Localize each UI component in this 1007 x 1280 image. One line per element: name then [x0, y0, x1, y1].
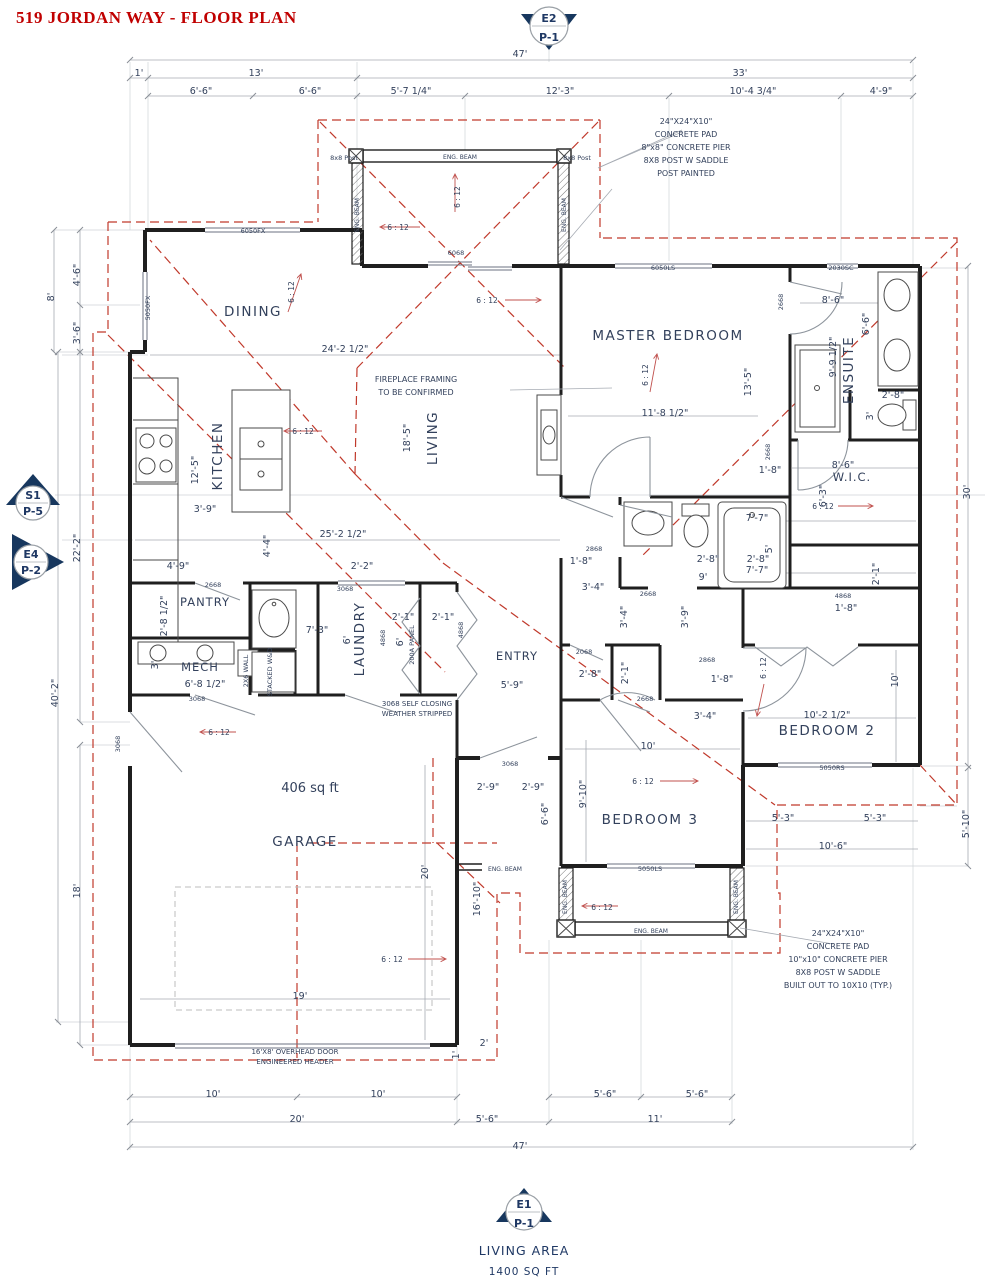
- door-size: 4868: [835, 592, 852, 600]
- dim-label: 6'-8 1/2": [185, 679, 226, 690]
- dim-label: 6': [342, 636, 353, 645]
- dim-label: 3': [865, 412, 876, 421]
- dim-label: 30': [962, 485, 973, 500]
- slope-label: 6 : 12: [453, 186, 462, 208]
- note-top-right: 8X8 POST W SADDLE: [644, 156, 729, 165]
- room-label-bedroom-3: BEDROOM 3: [602, 812, 699, 828]
- note-bottom-right: CONCRETE PAD: [807, 942, 870, 951]
- dim-label: 5'-7 1/4": [391, 86, 432, 97]
- dim-label: 2'-2": [351, 561, 374, 572]
- beam-label: ENG. BEAM: [733, 880, 740, 914]
- dim-label: 3'-9": [194, 504, 217, 515]
- room-label-kitchen: KITCHEN: [210, 422, 226, 491]
- marker-label: S1: [25, 489, 41, 502]
- room-label-dining: DINING: [224, 304, 282, 320]
- slope-label: 6 : 12: [208, 728, 230, 737]
- toilet-icon: [878, 404, 906, 426]
- dim-label: 5': [764, 545, 775, 554]
- window-size: 5050RS: [819, 764, 844, 772]
- section-marker-e2: E2 P-1: [521, 7, 577, 50]
- room-label-master-bedroom: MASTER BEDROOM: [592, 328, 743, 344]
- note-bottom-right: 24"X24"X10": [812, 929, 865, 938]
- slope-label: 6 : 12: [476, 296, 498, 305]
- dim-label: 6'-6": [861, 313, 872, 336]
- dim-label: 13'-5": [743, 368, 754, 397]
- note-top-right: 24"X24"X10": [660, 117, 713, 126]
- dim-label: 2'-9": [522, 782, 545, 793]
- dim-label: 1'-8": [570, 556, 593, 567]
- floor-plan-drawing: E2 P-1 S1 P-5 E4 P-2 E1 P-1 LIVING AREA …: [0, 0, 1007, 1280]
- dim-label: 10'-2 1/2": [804, 710, 851, 721]
- note-bottom-right: BUILT OUT TO 10X10 (TYP.): [784, 981, 892, 990]
- door-size: 2868: [586, 545, 603, 553]
- post-note: 8x8 Post: [330, 154, 358, 162]
- note-bottom-right: 8X8 POST W SADDLE: [796, 968, 881, 977]
- dim-label: 18'-5": [402, 424, 413, 453]
- note-top-right: 8"x8" CONCRETE PIER: [641, 143, 731, 152]
- dim-label: 2'-1": [392, 612, 415, 623]
- room-label-bedroom-2: BEDROOM 2: [779, 723, 876, 739]
- room-label-ensuite: ENSUITE: [841, 336, 857, 404]
- door-size: 3068: [189, 695, 206, 703]
- dim-label: 19': [293, 991, 308, 1002]
- door-size: 2668: [640, 590, 657, 598]
- slope-label: 6 : 12: [287, 281, 296, 303]
- dim-label: 9': [699, 572, 708, 583]
- wall-note: 2X6 WALL: [242, 654, 250, 687]
- dim-label: 40'-2": [50, 679, 61, 708]
- dim-label: 3'-4": [619, 606, 630, 629]
- dim-overall-top: 47': [513, 49, 528, 60]
- window-size: 6050LS: [651, 264, 675, 272]
- note-self-closing: 3068 SELF CLOSING: [382, 700, 452, 708]
- room-label-entry: ENTRY: [496, 649, 538, 663]
- dim-label: 11'-8 1/2": [642, 408, 689, 419]
- dim-label: 6'-6": [299, 86, 322, 97]
- dim-label: 10'-6": [819, 841, 848, 852]
- dim-label: 8': [46, 293, 57, 302]
- dim-label: 13': [249, 68, 264, 79]
- section-marker-e1: E1 P-1: [496, 1188, 552, 1230]
- slope-label: 6 : 12: [292, 427, 314, 436]
- door-size: 6068: [448, 249, 465, 257]
- door-size: 2668: [777, 294, 785, 311]
- door-size: 4868: [457, 622, 465, 639]
- door-size: 3068: [502, 760, 519, 768]
- dim-label: 1'-8": [759, 465, 782, 476]
- dim-overall-bottom: 47': [513, 1141, 528, 1152]
- dim-label: 3'-4": [694, 711, 717, 722]
- marker-label: P-1: [539, 31, 559, 44]
- note-bottom-right: 10"x10" CONCRETE PIER: [788, 955, 888, 964]
- dim-label: 10': [890, 673, 901, 688]
- window-size: 2030SC: [828, 264, 854, 272]
- appliance-note: STACKED W&D: [266, 648, 274, 696]
- door-size: 3068: [114, 736, 122, 753]
- dim-label: 2'-1": [871, 563, 882, 586]
- living-area-label: LIVING AREA: [479, 1243, 570, 1258]
- dim-label: 24'-2 1/2": [322, 344, 369, 355]
- note-top-right: POST PAINTED: [657, 169, 715, 178]
- door-size: 2068: [576, 648, 593, 656]
- door-size: 2868: [699, 656, 716, 664]
- dim-label: 9'-9 1/2": [828, 337, 839, 378]
- dim-label: 18': [72, 884, 83, 899]
- beam-label: ENG. BEAM: [634, 928, 668, 935]
- dim-label: 1': [135, 68, 144, 79]
- dim-label: 3'-9": [680, 606, 691, 629]
- slope-label: 6 : 12: [591, 903, 613, 912]
- dim-label: 7'-7": [746, 565, 769, 576]
- slope-label: 6 : 12: [387, 223, 409, 232]
- marker-label: E2: [541, 12, 556, 25]
- dim-label: 8'-6": [822, 295, 845, 306]
- dim-label: 1'-8": [835, 603, 858, 614]
- dim-label: 5'-9": [501, 680, 524, 691]
- dim-label: 10'-4 3/4": [730, 86, 777, 97]
- dim-label: 5'-6": [686, 1089, 709, 1100]
- slope-label: 6 : 12: [632, 777, 654, 786]
- door-size: 3068: [337, 585, 354, 593]
- dim-label: 2'-9": [477, 782, 500, 793]
- dim-label: 3'-4": [582, 582, 605, 593]
- dim-label: 4'-9": [870, 86, 893, 97]
- dim-label: 5'-3": [864, 813, 887, 824]
- dim-label: 1': [451, 1051, 462, 1060]
- window-size: 6050FX: [241, 227, 266, 235]
- room-label-pantry: PANTRY: [180, 595, 230, 609]
- dim-label: 2'-8 1/2": [159, 596, 170, 637]
- slope-label: 6 : 12: [641, 364, 650, 386]
- dim-label: 3'-6": [72, 322, 83, 345]
- dim-label: 6'-6": [540, 803, 551, 826]
- window-size: 5050LS: [638, 865, 662, 873]
- dim-label: 6'-6": [190, 86, 213, 97]
- panel-note: 200A PANEL: [408, 625, 416, 665]
- dim-label: 10': [641, 741, 656, 752]
- door-size: 2668: [205, 581, 222, 589]
- dim-label: 6': [395, 638, 406, 647]
- dim-label: 8'-6": [832, 460, 855, 471]
- room-label-garage: GARAGE: [272, 834, 338, 850]
- dim-label: 2'-8": [747, 554, 770, 565]
- floor-plan-page: 519 JORDAN WAY - FLOOR PLAN: [0, 0, 1007, 1280]
- dim-label: 11': [648, 1114, 663, 1125]
- window-size: 5050FX: [144, 295, 152, 320]
- marker-label: E4: [23, 548, 39, 561]
- slope-label: 6 : 12: [759, 657, 768, 679]
- dim-label: 16'-10": [472, 882, 483, 917]
- dim-label: 10': [371, 1089, 386, 1100]
- slope-label: 6 : 12: [381, 955, 403, 964]
- note-fireplace: TO BE CONFIRMED: [377, 388, 453, 397]
- dim-label: 7'-7": [746, 513, 769, 524]
- marker-label: P-1: [514, 1217, 534, 1230]
- dim-label: 2'-8": [882, 390, 905, 401]
- dim-label: 2'-1": [432, 612, 455, 623]
- dim-label: 3': [150, 661, 161, 670]
- dim-label: 2': [480, 1038, 489, 1049]
- note-overhead-door: 16'X8' OVERHEAD DOOR: [251, 1048, 338, 1056]
- door-size: 2668: [764, 444, 772, 461]
- living-area-value: 1400 SQ FT: [489, 1266, 560, 1278]
- dim-label: 4'-4": [262, 535, 273, 558]
- dim-label: 12'-5": [190, 456, 201, 485]
- dim-label: 22'-2": [72, 534, 83, 563]
- dim-label: 20': [290, 1114, 305, 1125]
- toilet-icon: [684, 515, 708, 547]
- marker-label: P-5: [23, 505, 43, 518]
- beam-label: ENG. BEAM: [488, 866, 522, 873]
- dim-label: 7'-3": [306, 625, 329, 636]
- dim-label: 4'-9": [167, 561, 190, 572]
- dim-label: 5'-3": [772, 813, 795, 824]
- dim-label: 2'-8": [697, 554, 720, 565]
- room-label-laundry: LAUNDRY: [352, 602, 368, 677]
- dim-label: 20': [420, 865, 431, 880]
- note-fireplace: FIREPLACE FRAMING: [375, 375, 457, 384]
- marker-label: P-2: [21, 564, 41, 577]
- slope-label: 6 : 12: [812, 502, 834, 511]
- kitchen-island: [232, 390, 290, 512]
- beam-label: ENG. BEAM: [354, 198, 361, 232]
- door-size: 2668: [637, 695, 654, 703]
- dim-label: 9'-10": [578, 780, 589, 809]
- dim-label: 4'-6": [72, 264, 83, 287]
- beam-label: ENG. BEAM: [561, 198, 568, 232]
- dim-label: 10': [206, 1089, 221, 1100]
- dim-label: 5'-10": [961, 810, 972, 839]
- room-label-wic: W.I.C.: [833, 470, 871, 484]
- dim-label: 33': [733, 68, 748, 79]
- door-size: 4868: [379, 630, 387, 647]
- section-marker-e4: E4 P-2: [12, 534, 64, 590]
- beam-label: ENG. BEAM: [443, 154, 477, 161]
- beam-label: ENG. BEAM: [562, 880, 569, 914]
- garage-area: 406 sq ft: [281, 781, 339, 796]
- room-label-living: LIVING: [425, 411, 441, 465]
- dim-label: 5'-6": [594, 1089, 617, 1100]
- dim-label: 25'-2 1/2": [320, 529, 367, 540]
- room-label-mech: MECH: [181, 660, 219, 674]
- dim-label: 2'-8": [579, 669, 602, 680]
- post-note: 8x8 Post: [563, 154, 591, 162]
- text-labels: 47'1'13'33'6'-6"6'-6"5'-7 1/4"12'-3"10'-…: [46, 49, 973, 1152]
- dim-label: 1'-8": [711, 674, 734, 685]
- marker-label: E1: [516, 1198, 531, 1211]
- section-marker-s1: S1 P-5: [6, 474, 60, 520]
- note-top-right: CONCRETE PAD: [655, 130, 718, 139]
- note-self-closing: WEATHER STRIPPED: [382, 710, 453, 718]
- note-overhead-door: ENGINEERED HEADER: [256, 1058, 333, 1066]
- dim-label: 12'-3": [546, 86, 575, 97]
- dim-label: 5'-6": [476, 1114, 499, 1125]
- dim-label: 2'-1": [620, 662, 631, 685]
